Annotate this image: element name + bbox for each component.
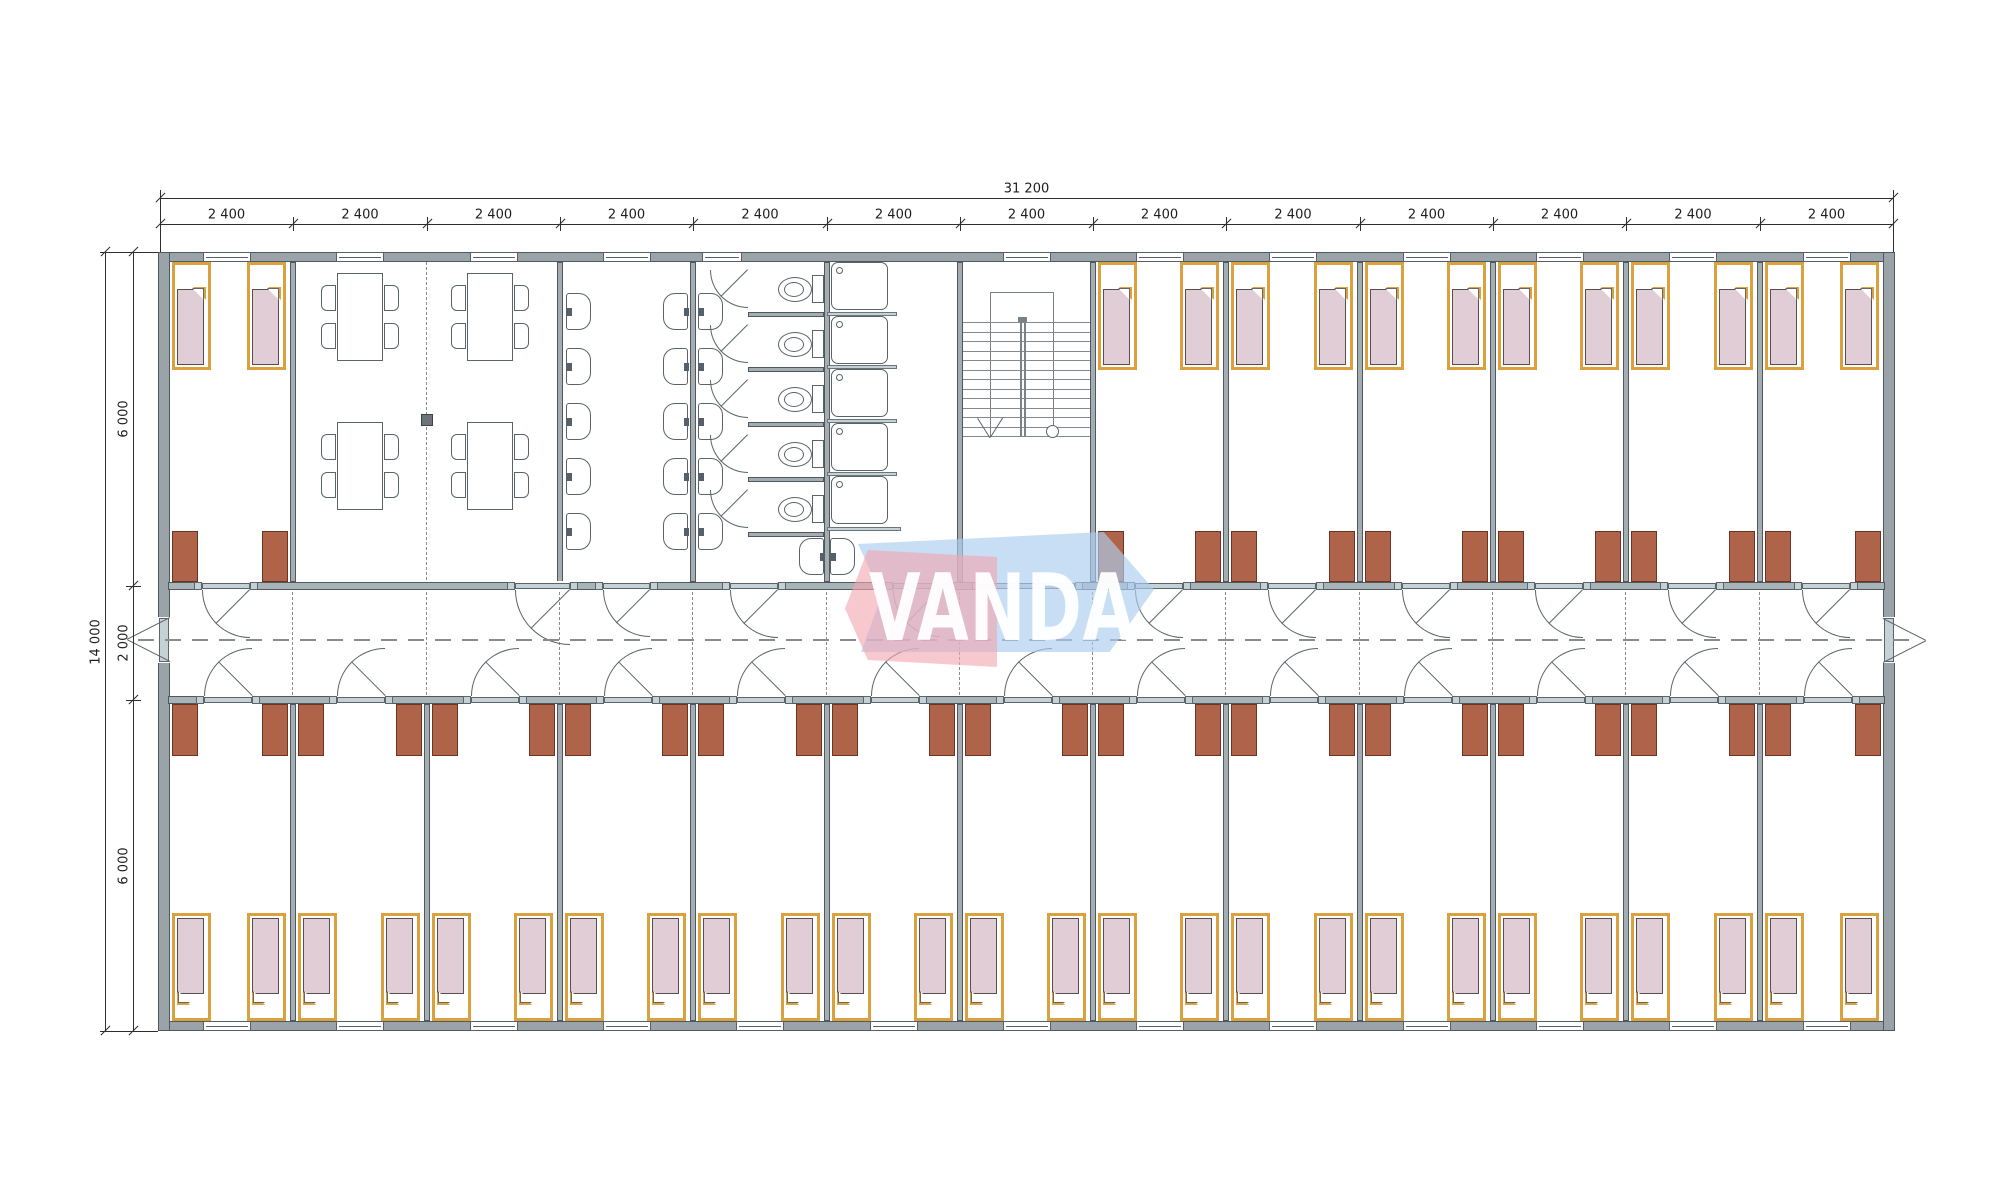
door-jamb-sill [250,582,258,590]
bed [1314,262,1353,370]
wardrobe [929,704,955,756]
door-threshold [737,697,785,703]
basin-tap [567,473,572,481]
basin-tap [699,308,704,316]
partition-wall-bottom [290,704,296,1021]
door-jamb-sill [1452,696,1460,704]
shower-drain [836,374,843,381]
door-jamb-sill [1583,582,1591,590]
window [1669,1021,1717,1031]
door-jamb-sill [329,696,337,704]
washbasin [566,513,591,550]
door-jamb-sill [1796,696,1804,704]
dimension-label: 31 200 [1004,182,1050,197]
window [470,1021,518,1031]
door-jamb-sill [595,582,603,590]
bed-mattress [252,918,279,994]
window [336,1021,384,1031]
toilet-bowl-inner [784,447,804,462]
partition-wall-bottom [690,704,696,1021]
shower-drain [836,481,843,488]
door-jamb-sill [1585,696,1593,704]
window-glass-line [339,1026,381,1027]
wardrobe [832,704,858,756]
door-jamb-sill [652,696,660,704]
stall-divider [748,367,824,372]
wardrobe [565,704,591,756]
partition-wall-top [1223,262,1229,582]
washbasin [566,348,591,385]
wardrobe [1765,704,1791,756]
door-jamb-sill [385,696,393,704]
bed-mattress [919,918,946,994]
dimension-label: 6 000 [117,400,132,437]
toilet-tank [812,495,824,523]
bed-mattress [1185,289,1212,365]
window-glass-line [206,257,248,258]
door-jamb-sill [1529,696,1537,704]
stair-tread [963,389,1090,390]
bed [1231,913,1270,1021]
washbasin [566,403,591,440]
wardrobe [1855,704,1881,756]
bed [1180,913,1219,1021]
dimension-label: 2 400 [1141,208,1178,223]
window-glass-line [1272,257,1314,258]
door-jamb-sill [1394,582,1402,590]
door-jamb-sill [1262,696,1270,704]
basin-tap [684,473,689,481]
basin-tap [567,308,572,316]
door-jamb-sill [1185,696,1193,704]
toilet-bowl [778,387,812,412]
door-jamb-sill [650,582,658,590]
door-jamb-sill [1450,582,1458,590]
stair-tread [963,360,1090,361]
window-glass-line [1672,257,1714,258]
bed-mattress [1236,918,1263,994]
logo-text: VANDA [894,558,1110,658]
partition-wall-top [957,262,963,582]
basin-tap [699,363,704,371]
bed [1580,262,1619,370]
window-glass-line [1806,257,1848,258]
bed-mattress [1636,918,1663,994]
wardrobe [1195,531,1221,582]
wardrobe [1329,704,1355,756]
wardrobe [1631,531,1657,582]
bed [1231,262,1270,370]
wardrobe [298,704,324,756]
wardrobe [1365,704,1391,756]
bed [914,913,953,1021]
door-jamb-sill [1850,582,1858,590]
partition-wall-bottom [1223,704,1229,1021]
door-threshold [1537,697,1585,703]
chair [384,285,399,311]
door-threshold [1404,697,1452,703]
door-jamb-sill [996,696,1004,704]
dimension-label: 2 400 [475,208,512,223]
dimension-label: 2 400 [1541,208,1578,223]
window-glass-line [1806,1026,1848,1027]
bed [1365,262,1404,370]
basin-tap [831,553,836,561]
bed [1098,262,1137,370]
stair-tread [963,370,1090,371]
bed-mattress [1370,289,1397,365]
window-glass-line [606,257,648,258]
door-threshold [1135,583,1183,589]
door-threshold [337,697,385,703]
bed [1765,262,1804,370]
door-jamb-sill [778,582,786,590]
door-jamb-sill [1718,696,1726,704]
washbasin [830,538,855,575]
bed-mattress [837,918,864,994]
door-threshold [1535,583,1583,589]
bed-mattress [437,918,464,994]
floor-plan-canvas: 31 2002 4002 4002 4002 4002 4002 4002 40… [0,0,2000,1200]
bed-mattress [703,918,730,994]
door-jamb-sill [1052,696,1060,704]
bed [514,913,553,1021]
bed [432,913,471,1021]
chair [321,323,336,349]
window [1803,252,1851,262]
bed-mattress [1319,289,1346,365]
chair [321,472,336,498]
basin-tap [567,363,572,371]
window [1269,1021,1317,1031]
stair-circle [1046,425,1059,438]
bed [1365,913,1404,1021]
wardrobe [1098,704,1124,756]
chair [451,323,466,349]
window [1269,252,1317,262]
bed-mattress [1503,289,1530,365]
window [603,252,651,262]
partition-wall-top [1357,262,1363,582]
door-jamb-sill [252,696,260,704]
window-glass-line [1006,257,1048,258]
bed-mattress [1845,289,1872,365]
bed-mattress [1719,289,1746,365]
basin-tap [567,528,572,536]
bed [1314,913,1353,1021]
stair-down-arrow [990,418,1003,438]
door-jamb-sill [570,582,578,590]
window-glass-line [1139,257,1181,258]
door-threshold [1137,697,1185,703]
window-glass-line [1006,1026,1048,1027]
window [1136,252,1184,262]
window-glass-line [1406,257,1448,258]
bed [647,913,686,1021]
bed-mattress [303,918,330,994]
dimension-label: 2 000 [117,624,132,661]
stair-tread [963,398,1090,399]
dining-table [337,273,383,361]
window [870,1021,918,1031]
bed [1447,262,1486,370]
window-glass-line [206,1026,248,1027]
bed [965,913,1004,1021]
toilet-tank [812,330,824,358]
window-glass-line [1539,257,1581,258]
partition-wall-bottom [1090,704,1096,1021]
window [336,252,384,262]
window-glass-line [339,257,381,258]
door-threshold [1268,583,1316,589]
bed-mattress [1052,918,1079,994]
partition-wall-bottom [1757,704,1763,1021]
wardrobe [262,704,288,756]
dimension-line [133,252,134,1031]
door-threshold [1802,583,1850,589]
bed [1580,913,1619,1021]
bed-mattress [652,918,679,994]
wardrobe [1462,531,1488,582]
toilet-bowl [778,497,812,522]
dining-table [467,422,513,510]
wardrobe [1498,531,1524,582]
shower-drain [836,267,843,274]
window [203,252,251,262]
shower-tray [831,476,888,524]
bed [247,262,286,370]
bed-mattress [1585,918,1612,994]
bed-mattress [786,918,813,994]
window [203,1021,251,1031]
bed-mattress [1319,918,1346,994]
partition-wall-top [557,262,563,582]
bed-mattress [1103,918,1130,994]
wardrobe [662,704,688,756]
dimension-label: 2 400 [341,208,378,223]
shower-ledge [827,472,897,476]
stair-rail-cap [1018,317,1027,322]
wardrobe [1062,704,1088,756]
window-glass-line [473,257,515,258]
bed [172,262,211,370]
basin-tap [684,363,689,371]
stair-tread [963,379,1090,380]
door-jamb-sill [519,696,527,704]
window-glass-line [705,257,739,258]
bed [1714,913,1753,1021]
door-jamb-sill [919,696,927,704]
door-threshold [871,697,919,703]
partition-wall-top [1623,262,1629,582]
window [470,252,518,262]
stair-tread [963,408,1090,409]
bed [781,913,820,1021]
stall-divider [748,422,824,427]
wardrobe [698,704,724,756]
dimension-label: 2 400 [1808,208,1845,223]
washbasin [698,513,723,550]
stair-rail [1024,320,1026,437]
door-jamb-sill [1260,582,1268,590]
door-threshold [202,583,250,589]
wardrobe [432,704,458,756]
window [1403,1021,1451,1031]
bed-mattress [1503,918,1530,994]
door-jamb-sill [729,696,737,704]
stair-down-arrow [977,418,990,438]
stair-flight-line [990,292,1054,293]
window [736,1021,784,1031]
window [1803,1021,1851,1031]
stair-flight-line [1053,292,1054,437]
basin-tap [699,528,704,536]
shower-drain [836,428,843,435]
partition-wall-bottom [1357,704,1363,1021]
bed-mattress [1370,918,1397,994]
dimension-label: 6 000 [117,847,132,884]
bed-mattress [1770,289,1797,365]
door-jamb-sill [596,696,604,704]
door-swing-arc [515,590,570,645]
chair [384,434,399,460]
bed-mattress [570,918,597,994]
partition-wall-bottom [1623,704,1629,1021]
window [1136,1021,1184,1031]
toilet-tank [812,275,824,303]
door-jamb-sill [1129,696,1137,704]
dimension-line [160,198,1893,199]
wardrobe [1595,704,1621,756]
bed-mattress [1185,918,1212,994]
chair [384,323,399,349]
door-threshold [1804,697,1852,703]
bed [1180,262,1219,370]
door-jamb-sill [507,582,515,590]
chair [451,285,466,311]
wardrobe [1329,531,1355,582]
bed [1447,913,1486,1021]
window-glass-line [473,1026,515,1027]
toilet-tank [812,440,824,468]
window-glass-line [1539,1026,1581,1027]
chair [514,434,529,460]
basin-tap [684,528,689,536]
chair [384,472,399,498]
shower-tray [831,369,888,417]
washbasin [799,538,824,575]
toilet-bowl-inner [784,392,804,407]
chair [321,434,336,460]
toilet-bowl-inner [784,337,804,352]
bed [247,913,286,1021]
dimension-label: 2 400 [208,208,245,223]
stall-divider [748,312,824,317]
bed [1047,913,1086,1021]
bed-mattress [1452,918,1479,994]
dimension-label: 2 400 [1408,208,1445,223]
wardrobe [262,531,288,582]
washbasin [663,458,688,495]
bed [1498,262,1537,370]
washbasin [663,513,688,550]
basin-tap [699,418,704,426]
door-jamb-sill [1662,696,1670,704]
wardrobe [796,704,822,756]
door-jamb-sill [194,582,202,590]
stair-rail [1020,320,1022,437]
dimension-label: 2 400 [608,208,645,223]
washbasin [566,458,591,495]
stair-flight-line [990,292,991,437]
washbasin [663,293,688,330]
partition-wall-top [1090,262,1096,582]
door-threshold [730,583,778,589]
window [603,1021,651,1031]
window-glass-line [606,1026,648,1027]
bed-mattress [1236,289,1263,365]
dimension-label: 14 000 [89,619,104,665]
door-threshold [1270,697,1318,703]
wardrobe [529,704,555,756]
stair-tread [963,351,1090,352]
bed-mattress [1636,289,1663,365]
bed [1840,262,1879,370]
bed-mattress [1103,289,1130,365]
bed-mattress [177,289,204,365]
bed-mattress [1585,289,1612,365]
shower-tray [831,316,888,364]
door-jamb-sill [863,696,871,704]
door-jamb-sill [463,696,471,704]
partition-wall-top [1757,262,1763,582]
wardrobe [1365,531,1391,582]
window-glass-line [739,1026,781,1027]
chair [514,323,529,349]
door-jamb-sill [1527,582,1535,590]
bed [1098,913,1137,1021]
partition-wall-bottom [424,704,430,1021]
stair-tread [963,436,1090,437]
dimension-label: 2 400 [875,208,912,223]
window-glass-line [1139,1026,1181,1027]
stair-tread [963,322,1090,323]
shower-tray [831,262,888,310]
shower-ledge [827,312,897,316]
basin-tap [567,418,572,426]
wardrobe [1631,704,1657,756]
bed-mattress [1452,289,1479,365]
bed-mattress [252,289,279,365]
chair [514,472,529,498]
dimension-line [105,252,106,1031]
door-jamb-sill [785,696,793,704]
washbasin [663,348,688,385]
bed [698,913,737,1021]
door-jamb-sill [1660,582,1668,590]
wardrobe [1231,531,1257,582]
bed [832,913,871,1021]
partition-wall-top [290,262,296,582]
partition-wall-bottom [557,704,563,1021]
bed [1631,262,1670,370]
basin-tap [699,473,704,481]
structural-column [421,414,433,426]
wardrobe [1462,704,1488,756]
bed-mattress [177,918,204,994]
toilet-bowl [778,332,812,357]
partition-wall-top [690,262,696,582]
